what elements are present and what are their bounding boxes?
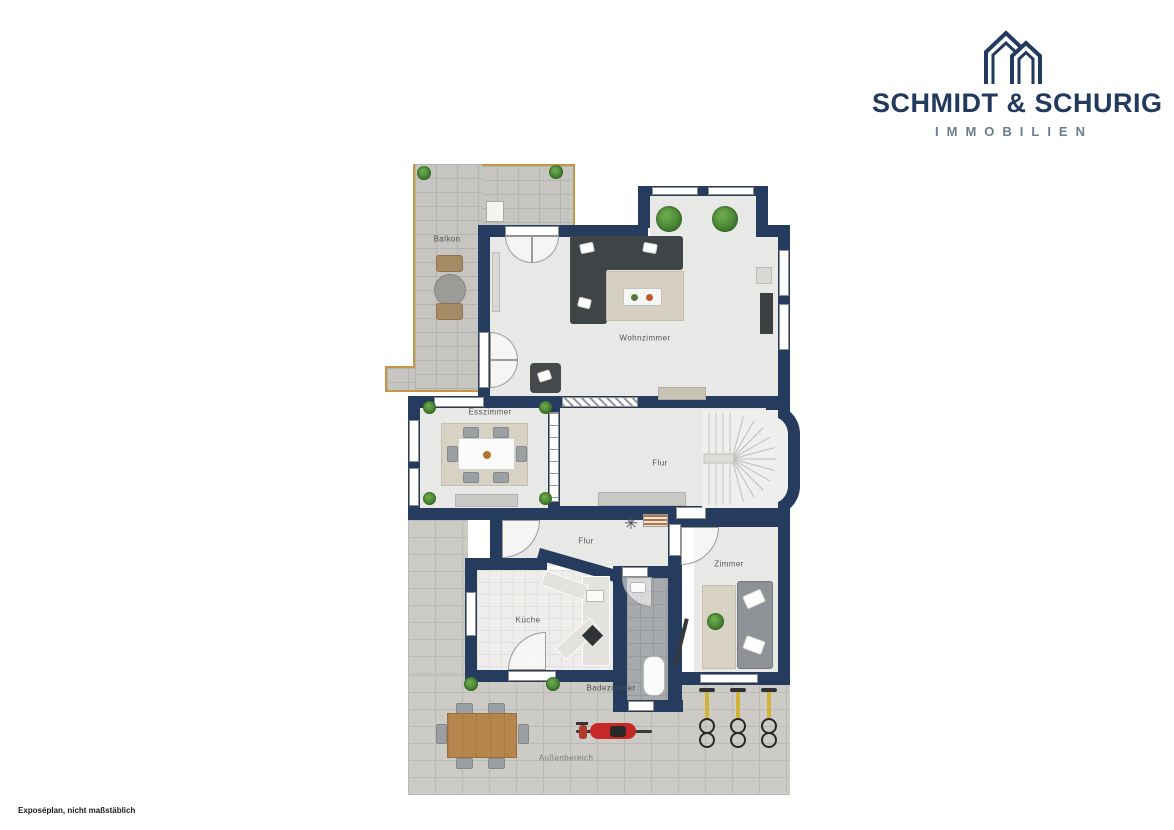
window [409, 420, 419, 462]
room-label-zimmer: Zimmer [714, 560, 744, 569]
bicycle-frame [705, 692, 709, 720]
chair-icon [456, 758, 473, 769]
radiator-icon [492, 252, 500, 312]
plant-icon [707, 613, 724, 630]
sideboard-icon [658, 387, 706, 400]
balcony-chair-icon [436, 303, 463, 320]
plant-icon [539, 492, 552, 505]
motorcycle-icon [576, 720, 652, 744]
window [434, 397, 484, 407]
sink-icon [630, 582, 646, 593]
chair-icon [516, 446, 527, 462]
room-label-kueche: Küche [516, 616, 541, 625]
chair-icon [518, 724, 529, 744]
window [409, 468, 419, 506]
chair-icon [463, 427, 479, 438]
door-opening [669, 524, 681, 556]
chair-icon [488, 758, 505, 769]
coffee-table-icon [623, 288, 662, 306]
bicycle-icon [698, 688, 716, 750]
plant-icon [656, 206, 682, 232]
room-label-aussenbereich: Außenbereich [539, 754, 594, 763]
outdoor-table-icon [447, 713, 517, 758]
bicycle-icon [760, 688, 778, 750]
window [779, 250, 789, 296]
tv-board-icon [760, 293, 773, 334]
balcony-table-icon [434, 274, 466, 306]
dining-table-icon [458, 438, 515, 470]
plant-icon [464, 677, 478, 691]
room-label-esszimmer: Esszimmer [468, 408, 511, 417]
chair-icon [436, 724, 447, 744]
decor-bowl [631, 294, 638, 301]
plant-icon [423, 492, 436, 505]
balcony-chair-icon [436, 255, 463, 272]
plant-icon [423, 401, 436, 414]
door-opening [505, 226, 559, 236]
bicycle-wheel [730, 732, 746, 748]
sink-icon [586, 590, 604, 602]
room-label-flur-og: Flur [652, 459, 667, 468]
decor-bowl [483, 451, 491, 459]
brand-name: SCHMIDT & SCHURIG [872, 88, 1148, 119]
grill-icon [486, 201, 504, 222]
window [779, 304, 789, 350]
window [466, 592, 476, 636]
plant-icon [539, 401, 552, 414]
bicycle-wheel [761, 732, 777, 748]
radiator-icon [756, 267, 772, 284]
sliding-door [562, 397, 638, 407]
chair-icon [447, 446, 458, 462]
brand-subtitle: IMMOBILIEN [872, 124, 1148, 139]
room-label-balkon: Balkon [434, 235, 461, 244]
decor-bowl [646, 294, 653, 301]
wall [408, 508, 560, 520]
plant-icon [546, 677, 560, 691]
chair-icon [493, 427, 509, 438]
chair-icon [493, 472, 509, 483]
glass-door [549, 412, 559, 502]
door-opening [622, 567, 648, 577]
window [652, 187, 698, 195]
bicycle-frame [736, 692, 740, 720]
ceiling-fan-icon: ✳ [621, 514, 641, 534]
room-label-flur-eg: Flur [578, 537, 593, 546]
spiral-staircase-icon [702, 410, 778, 508]
bicycle-icon [729, 688, 747, 750]
plant-icon [549, 165, 563, 179]
motorcycle-front [579, 725, 587, 739]
wall [465, 558, 547, 570]
door-opening [479, 332, 489, 388]
disclaimer-text: Exposéplan, nicht maßstäblich [18, 806, 135, 815]
sideboard-icon [455, 494, 518, 507]
radiator-icon [643, 514, 668, 527]
window [700, 674, 758, 683]
sideboard-icon [598, 492, 686, 506]
motorcycle-seat [610, 726, 626, 737]
window [708, 187, 754, 195]
door-opening [628, 701, 654, 711]
bicycle-frame [767, 692, 771, 720]
company-logo: SCHMIDT & SCHURIG IMMOBILIEN [872, 26, 1148, 156]
logo-houses-icon [966, 28, 1054, 84]
balcony-step [385, 366, 415, 392]
door-opening [676, 507, 706, 519]
wall [778, 512, 790, 685]
room-label-badezimmer: Badezimmer [587, 684, 636, 693]
chair-icon [463, 472, 479, 483]
bicycle-wheel [699, 732, 715, 748]
floorplan-page: SCHMIDT & SCHURIG IMMOBILIEN Balkon [0, 0, 1174, 830]
plant-icon [712, 206, 738, 232]
bathtub-icon [643, 656, 665, 696]
plant-icon [417, 166, 431, 180]
room-label-wohnzimmer: Wohnzimmer [620, 334, 671, 343]
